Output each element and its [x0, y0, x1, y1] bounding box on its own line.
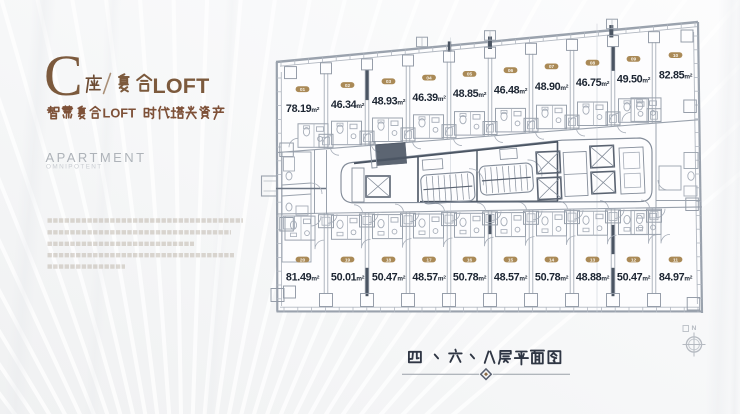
svg-text:C: C	[44, 43, 83, 108]
svg-text:10: 10	[673, 53, 679, 59]
svg-text:19: 19	[345, 257, 351, 263]
svg-text:14: 14	[549, 257, 555, 263]
svg-text:LOFT: LOFT	[153, 74, 210, 98]
svg-text:01: 01	[300, 87, 306, 93]
svg-text:OMNIPOTENT: OMNIPOTENT	[46, 164, 103, 171]
svg-text:16: 16	[467, 257, 473, 263]
svg-text:12: 12	[631, 257, 637, 263]
svg-text:09: 09	[631, 57, 637, 63]
svg-text:15: 15	[508, 257, 514, 263]
svg-text:17: 17	[426, 257, 432, 263]
svg-text:18: 18	[386, 257, 392, 263]
svg-text:06: 06	[508, 68, 514, 74]
svg-text:07: 07	[549, 64, 555, 70]
svg-text:N: N	[692, 325, 697, 332]
svg-text:LOFT: LOFT	[103, 105, 137, 120]
svg-text:02: 02	[345, 83, 351, 89]
svg-text:20: 20	[300, 257, 306, 263]
svg-text:13: 13	[590, 257, 596, 263]
svg-text:04: 04	[426, 75, 432, 81]
svg-text:08: 08	[590, 61, 596, 67]
svg-text:11: 11	[673, 257, 678, 263]
svg-text:03: 03	[386, 79, 392, 85]
svg-text:05: 05	[467, 72, 473, 78]
